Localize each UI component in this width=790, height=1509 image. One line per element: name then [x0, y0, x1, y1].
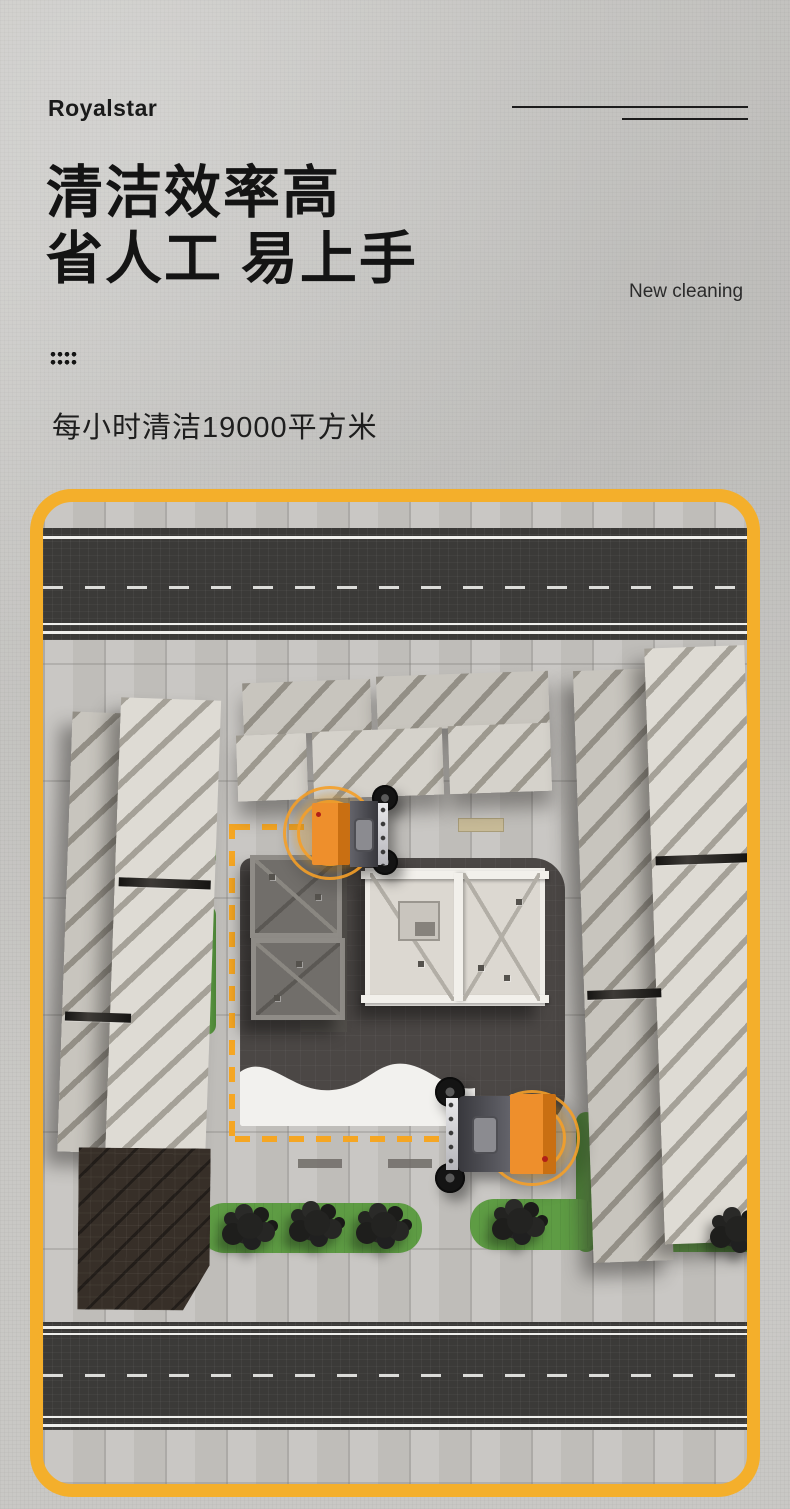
roof-pin — [315, 894, 321, 900]
road-edge-line — [43, 631, 747, 634]
building-top-front-3 — [448, 723, 552, 795]
tree — [507, 1208, 533, 1234]
roof-pin — [296, 961, 302, 967]
plaza-graybox-2 — [251, 938, 345, 1020]
roof-pin — [269, 874, 275, 880]
building-divider — [454, 873, 463, 1001]
subtitle-capacity: 每小时清洁19000平方米 — [52, 404, 378, 446]
roof-pin — [274, 995, 280, 1001]
plaza-white-building — [365, 868, 545, 1006]
tree — [725, 1216, 751, 1242]
road-center-dash — [43, 1374, 747, 1377]
grid-dots-icon — [50, 351, 78, 366]
road-edge-line — [43, 1424, 747, 1427]
building-slot — [119, 877, 211, 889]
road-edge-line — [43, 623, 747, 625]
route-dash-left — [229, 824, 235, 1142]
building-brown — [77, 1147, 210, 1310]
poster-page: { "header": { "brand": "Royalstar", "tit… — [0, 0, 790, 1509]
tree — [237, 1213, 263, 1239]
roof-pin — [478, 965, 484, 971]
road-edge-line — [43, 536, 747, 539]
road-edge-line — [43, 1333, 747, 1335]
roof-pin — [418, 961, 424, 967]
vehicle-bumper — [378, 803, 388, 865]
road-top — [43, 528, 747, 640]
vehicle-cargo-box — [510, 1094, 556, 1174]
tagline: New cleaning — [629, 281, 743, 303]
scene-canvas — [43, 502, 747, 1484]
brand-logo: Royalstar — [48, 95, 157, 122]
building-slot — [587, 988, 661, 1000]
roof-pin — [516, 899, 522, 905]
vehicle-light — [316, 812, 321, 817]
building-row-top — [234, 664, 560, 803]
building-right-front — [644, 645, 760, 1244]
cab-hatch — [354, 818, 374, 852]
decorative-rule-long — [512, 106, 748, 108]
page-title: 清洁效率高 省人工 易上手 — [46, 160, 418, 292]
building-brace-right — [463, 873, 540, 1001]
road-center-dash — [43, 586, 747, 589]
building-right — [572, 645, 760, 1267]
building-left-front — [105, 697, 221, 1164]
road-edge-line — [43, 1416, 747, 1418]
pavement-mark — [388, 1159, 432, 1168]
grass-strip-center — [470, 1199, 602, 1250]
building-left — [55, 695, 223, 1168]
scene-panel — [30, 489, 760, 1497]
building-top-back-1 — [242, 679, 372, 735]
road-edge-line — [43, 1326, 747, 1329]
tree — [304, 1210, 330, 1236]
building-top-back-2 — [376, 671, 550, 731]
page-title-line2: 省人工 易上手 — [46, 226, 418, 292]
sweeper-vehicle-top — [295, 784, 405, 884]
vehicle-light — [542, 1156, 548, 1162]
sweeper-vehicle-bottom — [428, 1072, 563, 1197]
bench — [458, 818, 504, 832]
decorative-rule-short — [622, 118, 748, 120]
vehicle-cab — [458, 1096, 510, 1172]
building-slot — [65, 1011, 132, 1022]
route-dash-bottom — [235, 1136, 459, 1142]
cab-hatch — [472, 1116, 498, 1154]
vehicle-cab — [350, 801, 378, 867]
page-title-line1: 清洁效率高 — [46, 160, 418, 226]
tree — [371, 1212, 397, 1238]
building-slot — [656, 853, 748, 865]
roof-pin — [504, 975, 510, 981]
roof-hatch — [398, 901, 440, 941]
vehicle-bumper — [446, 1098, 458, 1170]
pavement-mark — [298, 1159, 342, 1168]
road-bottom — [43, 1322, 747, 1430]
